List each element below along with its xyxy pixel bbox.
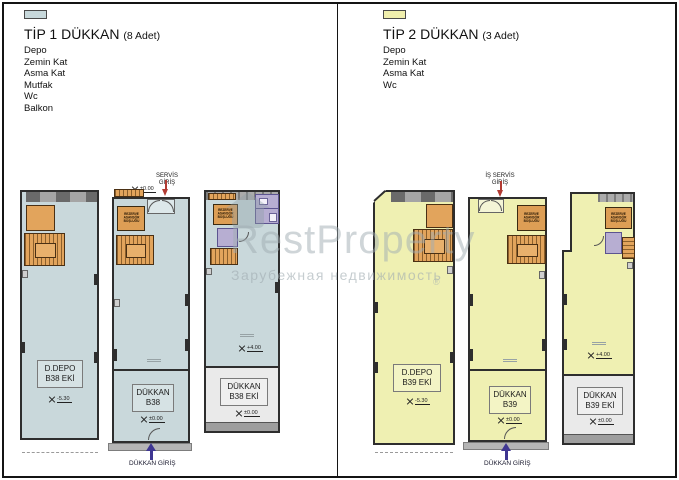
- legend-item: Zemin Kat: [383, 57, 519, 69]
- wall-tick: [94, 274, 97, 285]
- level-marker: ±0.00: [590, 418, 614, 425]
- room-name: D.DEPO: [395, 368, 439, 378]
- wall-tick: [542, 339, 545, 351]
- room-name: DÜKKAN: [491, 390, 529, 400]
- stairs-icon: [413, 229, 453, 262]
- room-code: B39 EKİ: [579, 401, 621, 411]
- legend-tip1-items: Depo Zemin Kat Asma Kat Mutfak Wc Balkon: [24, 45, 160, 114]
- roof-band: [26, 192, 97, 202]
- wall-tick: [94, 352, 97, 363]
- utility-box: [627, 262, 633, 269]
- service-arrow-head-icon: [497, 190, 503, 197]
- legend-tip2-title: TİP 2 DÜKKAN (3 Adet): [383, 26, 519, 42]
- stairs-icon: [210, 248, 238, 265]
- legend-tip2-count: (3 Adet): [482, 30, 519, 42]
- level-marker: +4.00: [588, 352, 612, 359]
- roof-band: [598, 194, 633, 202]
- watermark-house-icon: [226, 192, 270, 232]
- level-cross-icon: [236, 411, 242, 417]
- door-arc-icon: [504, 427, 516, 439]
- legend-item: Wc: [24, 91, 160, 103]
- floorplan-depo-b38-eki: D.DEPO B38 EKİ -5.30: [20, 190, 99, 440]
- room-label: D.DEPO B39 EKİ: [393, 364, 441, 392]
- service-arrow-icon: [165, 180, 167, 189]
- wall-tick: [185, 339, 188, 351]
- legend-item: Asma Kat: [24, 68, 160, 80]
- reserve-elevator-text: REZERVE ASANSÖR BOŞLUĞU: [611, 213, 627, 224]
- room-label: DÜKKAN B38: [132, 384, 174, 412]
- level-cross-icon: [407, 399, 413, 405]
- legend-tip1-title: TİP 1 DÜKKAN (8 Adet): [24, 26, 160, 42]
- room-label: DÜKKAN B38 EKİ: [220, 378, 268, 406]
- level-cross-icon: [588, 353, 594, 359]
- legend-item: Balkon: [24, 103, 160, 115]
- level-value: ±0.00: [244, 410, 260, 417]
- door-arc-icon: [239, 232, 249, 242]
- shop-entry-label: DÜKKAN GİRİŞ: [484, 460, 528, 467]
- wall-tick: [185, 294, 188, 306]
- room-name: DÜKKAN: [222, 382, 266, 392]
- section-dash-line: [375, 452, 453, 453]
- floorplan-dukkan-b38: REZERVE ASANSÖR BOŞLUĞU DÜKKAN B38 ±0.00: [112, 197, 190, 443]
- service-arrow-head-icon: [162, 189, 168, 196]
- utility-box: [447, 266, 453, 274]
- interior-wall: [470, 369, 545, 371]
- tip2-color-swatch: [383, 10, 406, 19]
- utility-box: [539, 271, 545, 279]
- entry-arrow-stem: [150, 451, 153, 460]
- level-value: ±0.00: [149, 416, 165, 423]
- utility-box: [114, 299, 120, 307]
- room-label: DÜKKAN B39 EKİ: [577, 387, 623, 415]
- legend-item: Asma Kat: [383, 68, 519, 80]
- level-marker: -5.30: [407, 398, 430, 405]
- level-marker: ±0.00: [498, 417, 522, 424]
- wc-fixture: [269, 213, 277, 222]
- stairs-icon: [116, 235, 154, 265]
- service-arrow-icon: [500, 181, 502, 190]
- reserve-elevator-shaft: REZERVE ASANSÖR BOŞLUĞU: [605, 207, 632, 229]
- sidewalk-band: [206, 422, 278, 431]
- room-name: DÜKKAN: [134, 388, 172, 398]
- entry-arrow-icon: [501, 443, 511, 451]
- level-value: -5.30: [57, 396, 72, 403]
- service-entry-label: SERVİS GİRİŞ: [150, 173, 184, 186]
- wall-tick: [450, 352, 453, 363]
- shop-entry-label: DÜKKAN GİRİŞ: [129, 460, 173, 467]
- level-cross-icon: [498, 418, 504, 424]
- legend-tip1: TİP 1 DÜKKAN (8 Adet) Depo Zemin Kat Asm…: [24, 10, 160, 114]
- legend-tip2-items: Depo Zemin Kat Asma Kat Wc: [383, 45, 519, 91]
- door-arc-icon: [594, 236, 604, 246]
- legend-tip2-title-text: TİP 2 DÜKKAN: [383, 26, 478, 42]
- level-value: ±0.00: [598, 418, 614, 425]
- wall-tick: [375, 302, 378, 313]
- level-value: +4.00: [247, 345, 263, 352]
- floorplan-dukkan-b39: REZERVE ASANSÖR BOŞLUĞU DÜKKAN B39 ±0.00: [468, 197, 547, 442]
- storage-room: [426, 204, 453, 228]
- level-value: +4.00: [596, 352, 612, 359]
- stairs-strip: [114, 189, 144, 197]
- level-marker: ±0.00: [141, 416, 165, 423]
- roof-band: [391, 192, 453, 202]
- level-marker: ±0.00: [236, 410, 260, 417]
- service-entry-line1: İŞ SERVİS: [480, 173, 520, 180]
- area-note: [503, 357, 517, 364]
- section-dash-line: [22, 452, 98, 453]
- level-cross-icon: [49, 397, 55, 403]
- storage-room: [26, 205, 55, 231]
- level-value: -5.30: [415, 398, 430, 405]
- interior-wall: [114, 369, 188, 371]
- legend-item: Depo: [383, 45, 519, 57]
- area-note: [592, 340, 606, 347]
- reserve-elevator-shaft: REZERVE ASANSÖR BOŞLUĞU: [517, 205, 546, 231]
- room-name: D.DEPO: [39, 364, 81, 374]
- level-cross-icon: [590, 419, 596, 425]
- legend-item: Zemin Kat: [24, 57, 160, 69]
- area-note: [240, 332, 254, 339]
- outline-step: [562, 192, 572, 252]
- wall-tick: [275, 282, 278, 293]
- level-marker: -5.30: [49, 396, 72, 403]
- wall-tick: [470, 349, 473, 361]
- level-marker: +4.00: [239, 345, 263, 352]
- level-value: ±0.00: [506, 417, 522, 424]
- utility-box: [206, 268, 212, 275]
- room-name: DÜKKAN: [579, 391, 621, 401]
- area-note: [147, 357, 161, 364]
- wall-tick: [22, 342, 25, 353]
- wall-tick: [564, 294, 567, 305]
- stairs-icon: [622, 237, 635, 259]
- legend-tip1-title-text: TİP 1 DÜKKAN: [24, 26, 119, 42]
- room-code: B38: [134, 398, 172, 408]
- stairs-icon: [24, 233, 65, 266]
- room-code: B39: [491, 400, 529, 410]
- legend-tip1-count: (8 Adet): [123, 30, 160, 42]
- sidewalk-band: [564, 434, 633, 443]
- floorplan-depo-b39-eki: D.DEPO B39 EKİ -5.30: [373, 190, 455, 445]
- stairs-icon: [507, 235, 546, 264]
- reserve-elevator-shaft: REZERVE ASANSÖR BOŞLUĞU: [117, 206, 145, 231]
- level-cross-icon: [239, 346, 245, 352]
- watermark-registered-mark: ®: [433, 277, 440, 287]
- wall-tick: [114, 349, 117, 361]
- room-code: B38 EKİ: [222, 392, 266, 402]
- legend-item: Mutfak: [24, 80, 160, 92]
- reserve-elevator-text: REZERVE ASANSÖR BOŞLUĞU: [123, 213, 139, 224]
- reserve-elevator-text: REZERVE ASANSÖR BOŞLUĞU: [524, 213, 540, 224]
- wall-tick: [375, 362, 378, 373]
- wall-tick: [564, 339, 567, 350]
- room-label: DÜKKAN B39: [489, 386, 531, 414]
- utility-box: [22, 270, 28, 278]
- panel-divider: [337, 4, 338, 476]
- technical-room: [605, 232, 622, 254]
- room-code: B38 EKİ: [39, 374, 81, 384]
- entry-arrow-stem: [505, 451, 508, 460]
- floorplan-dukkan-b39-eki: REZERVE ASANSÖR BOŞLUĞU +4.00 DÜKKAN B39…: [562, 192, 635, 445]
- legend-tip2: TİP 2 DÜKKAN (3 Adet) Depo Zemin Kat Asm…: [383, 10, 519, 91]
- room-code: B39 EKİ: [395, 378, 439, 388]
- tip1-color-swatch: [24, 10, 47, 19]
- entry-arrow-icon: [146, 443, 156, 451]
- legend-item: Depo: [24, 45, 160, 57]
- level-cross-icon: [141, 417, 147, 423]
- room-label: D.DEPO B38 EKİ: [37, 360, 83, 388]
- legend-item: Wc: [383, 80, 519, 92]
- wall-tick: [470, 294, 473, 306]
- door-arc-icon: [148, 428, 160, 440]
